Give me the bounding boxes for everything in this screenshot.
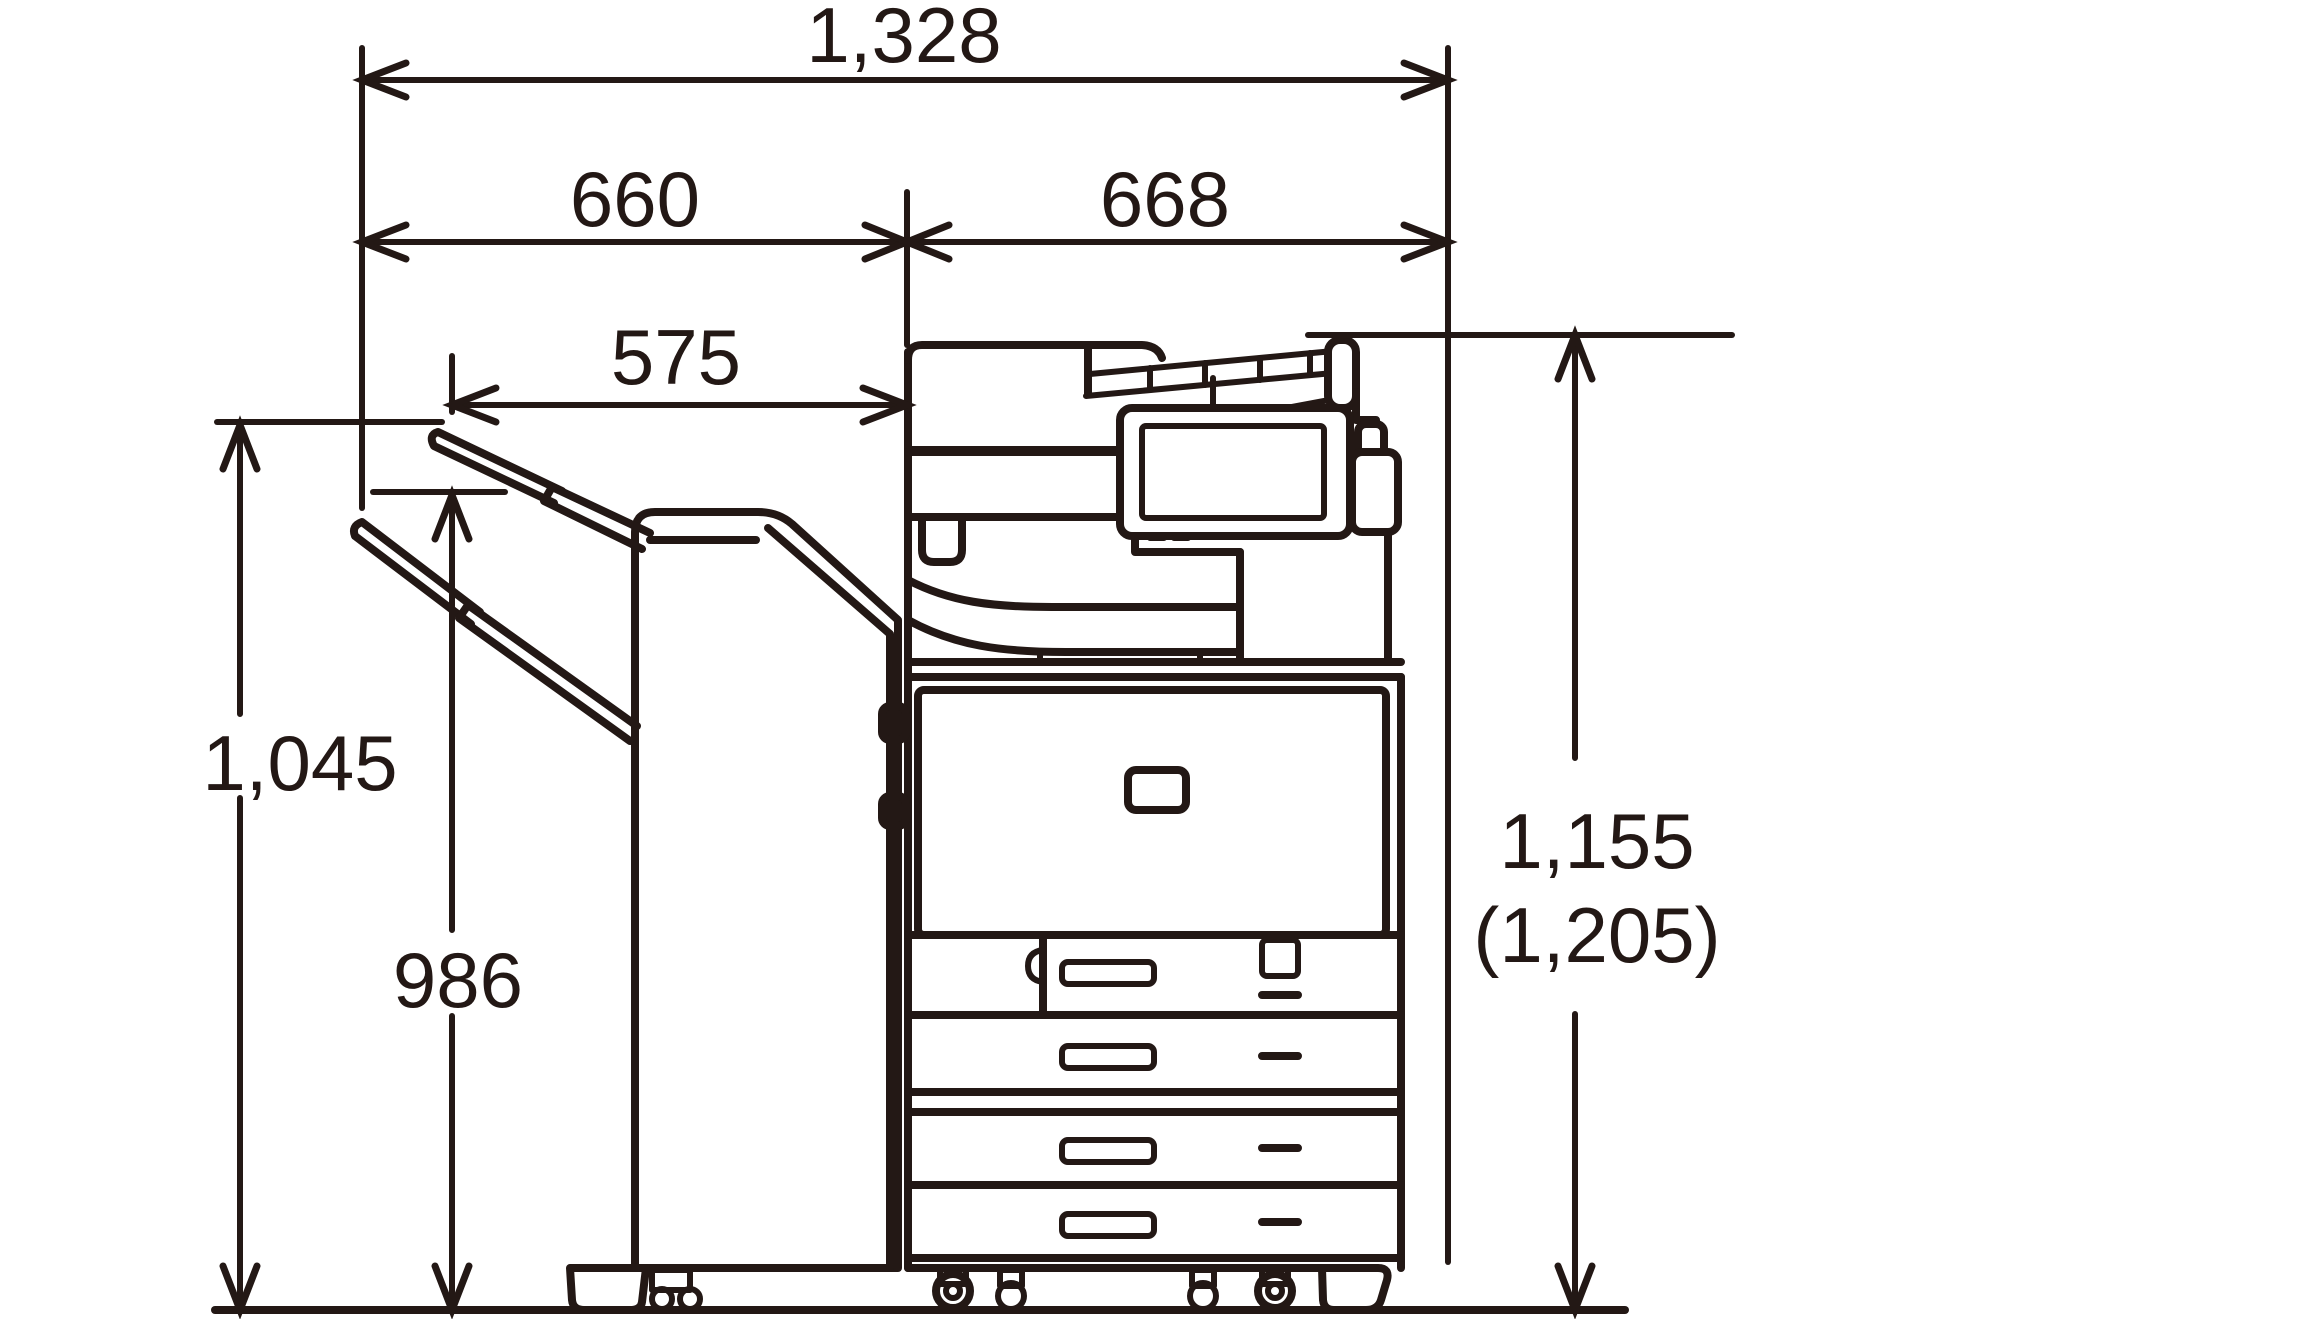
side-exit-tray bbox=[1352, 452, 1398, 532]
output-tray-curve-lower bbox=[908, 620, 1240, 652]
dim-tray-width: 575 bbox=[452, 313, 907, 422]
dim-label-upper-tray-height: 1,045 bbox=[202, 719, 397, 807]
main-unit bbox=[882, 340, 1401, 1268]
casters bbox=[570, 1268, 1388, 1310]
drawer1-lock-button bbox=[1262, 940, 1298, 976]
finisher-lower-output-tray bbox=[354, 522, 637, 741]
finisher-unit bbox=[635, 512, 898, 1268]
drawer3-handle bbox=[1062, 1140, 1154, 1162]
drawer4-handle bbox=[1062, 1214, 1154, 1236]
printer-right-foot bbox=[1322, 1268, 1388, 1310]
dim-label-overall-width: 1,328 bbox=[806, 0, 1001, 79]
printer-dimension-diagram: 1,328 660 668 575 1,045 986 1,155 (1, bbox=[0, 0, 2303, 1319]
dim-label-lower-tray-height: 986 bbox=[393, 936, 523, 1024]
dim-upper-tray-height: 1,045 bbox=[202, 425, 397, 1310]
door-handle-slot bbox=[1128, 770, 1186, 810]
front-door bbox=[918, 677, 1401, 1268]
printer-wheel-1 bbox=[936, 1274, 970, 1308]
dimension-diagram-canvas: 1,328 660 668 575 1,045 986 1,155 (1, bbox=[0, 0, 2303, 1319]
drawer2-handle bbox=[1062, 1046, 1154, 1068]
drawer1-handle bbox=[1062, 962, 1154, 984]
finisher-slope-inner-line bbox=[768, 528, 890, 1268]
mid-body-band bbox=[908, 662, 1401, 677]
dim-label-output-tray-width: 575 bbox=[611, 313, 741, 401]
printer-wheel-4 bbox=[1258, 1274, 1292, 1308]
adf-tray-end-cap bbox=[1328, 340, 1356, 408]
lower-tray-inner-section bbox=[459, 605, 637, 741]
finisher-body-outline bbox=[635, 512, 898, 1268]
adf-top-cover bbox=[908, 345, 1162, 360]
dim-label-finisher-width: 660 bbox=[570, 155, 700, 243]
finisher-foot bbox=[570, 1268, 646, 1310]
dim-overall-height: 1,155 (1,205) bbox=[1473, 335, 1720, 1310]
output-tray-curve-upper bbox=[908, 580, 1240, 607]
dim-overall-width: 1,328 bbox=[362, 0, 1448, 97]
extension-lines bbox=[217, 48, 1732, 1262]
dim-label-overall-height: 1,155 bbox=[1499, 797, 1694, 885]
dim-label-overall-height-alt: (1,205) bbox=[1473, 891, 1720, 979]
dim-label-main-unit-width: 668 bbox=[1100, 155, 1230, 243]
printer-wheel-4-hub bbox=[1268, 1284, 1282, 1298]
paper-exit-notch bbox=[922, 517, 962, 562]
printer-wheel-1-hub bbox=[946, 1284, 960, 1298]
paper-drawers bbox=[908, 935, 1401, 1258]
